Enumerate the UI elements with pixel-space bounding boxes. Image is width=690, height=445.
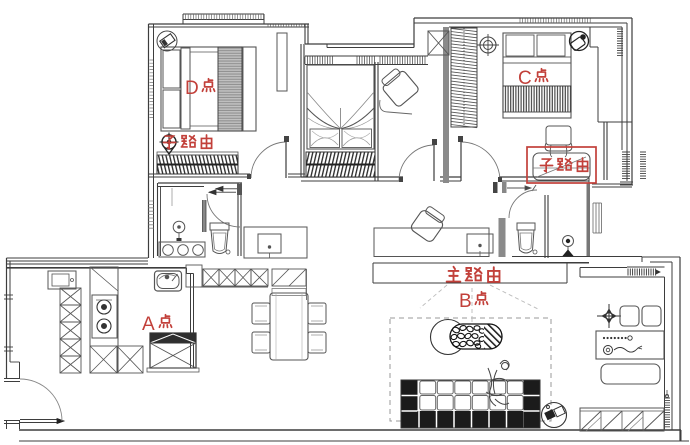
svg-text:A: A bbox=[142, 314, 155, 335]
svg-text:C: C bbox=[518, 68, 532, 89]
svg-text:B: B bbox=[459, 291, 472, 312]
svg-text:D: D bbox=[185, 78, 199, 99]
